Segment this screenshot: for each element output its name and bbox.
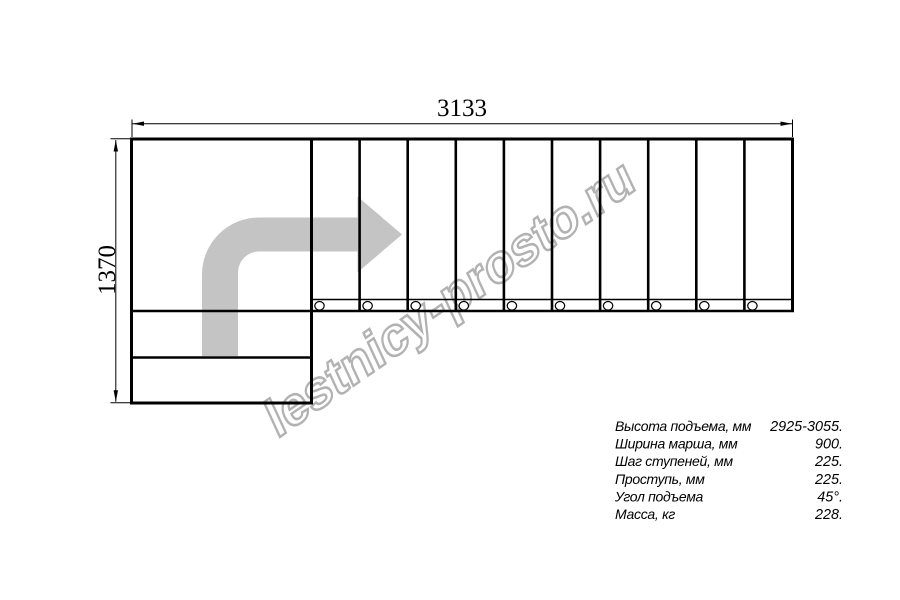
svg-text:Шаг ступеней, мм: Шаг ступеней, мм (615, 453, 733, 469)
svg-text:Угол подъема: Угол подъема (614, 488, 704, 504)
svg-text:45°.: 45°. (817, 489, 843, 505)
svg-text:228.: 228. (814, 507, 843, 523)
svg-text:Высота подъема, мм: Высота подъема, мм (615, 418, 752, 434)
svg-text:2925-3055.: 2925-3055. (769, 419, 843, 435)
svg-text:Ширина марша, мм: Ширина марша, мм (615, 436, 738, 452)
svg-text:1370: 1370 (94, 245, 121, 295)
svg-text:225.: 225. (814, 454, 843, 470)
svg-text:Масса, кг: Масса, кг (615, 506, 675, 522)
svg-text:225.: 225. (814, 472, 843, 488)
svg-text:900.: 900. (815, 437, 843, 453)
svg-text:Проступь, мм: Проступь, мм (615, 471, 705, 487)
svg-text:3133: 3133 (437, 95, 487, 122)
